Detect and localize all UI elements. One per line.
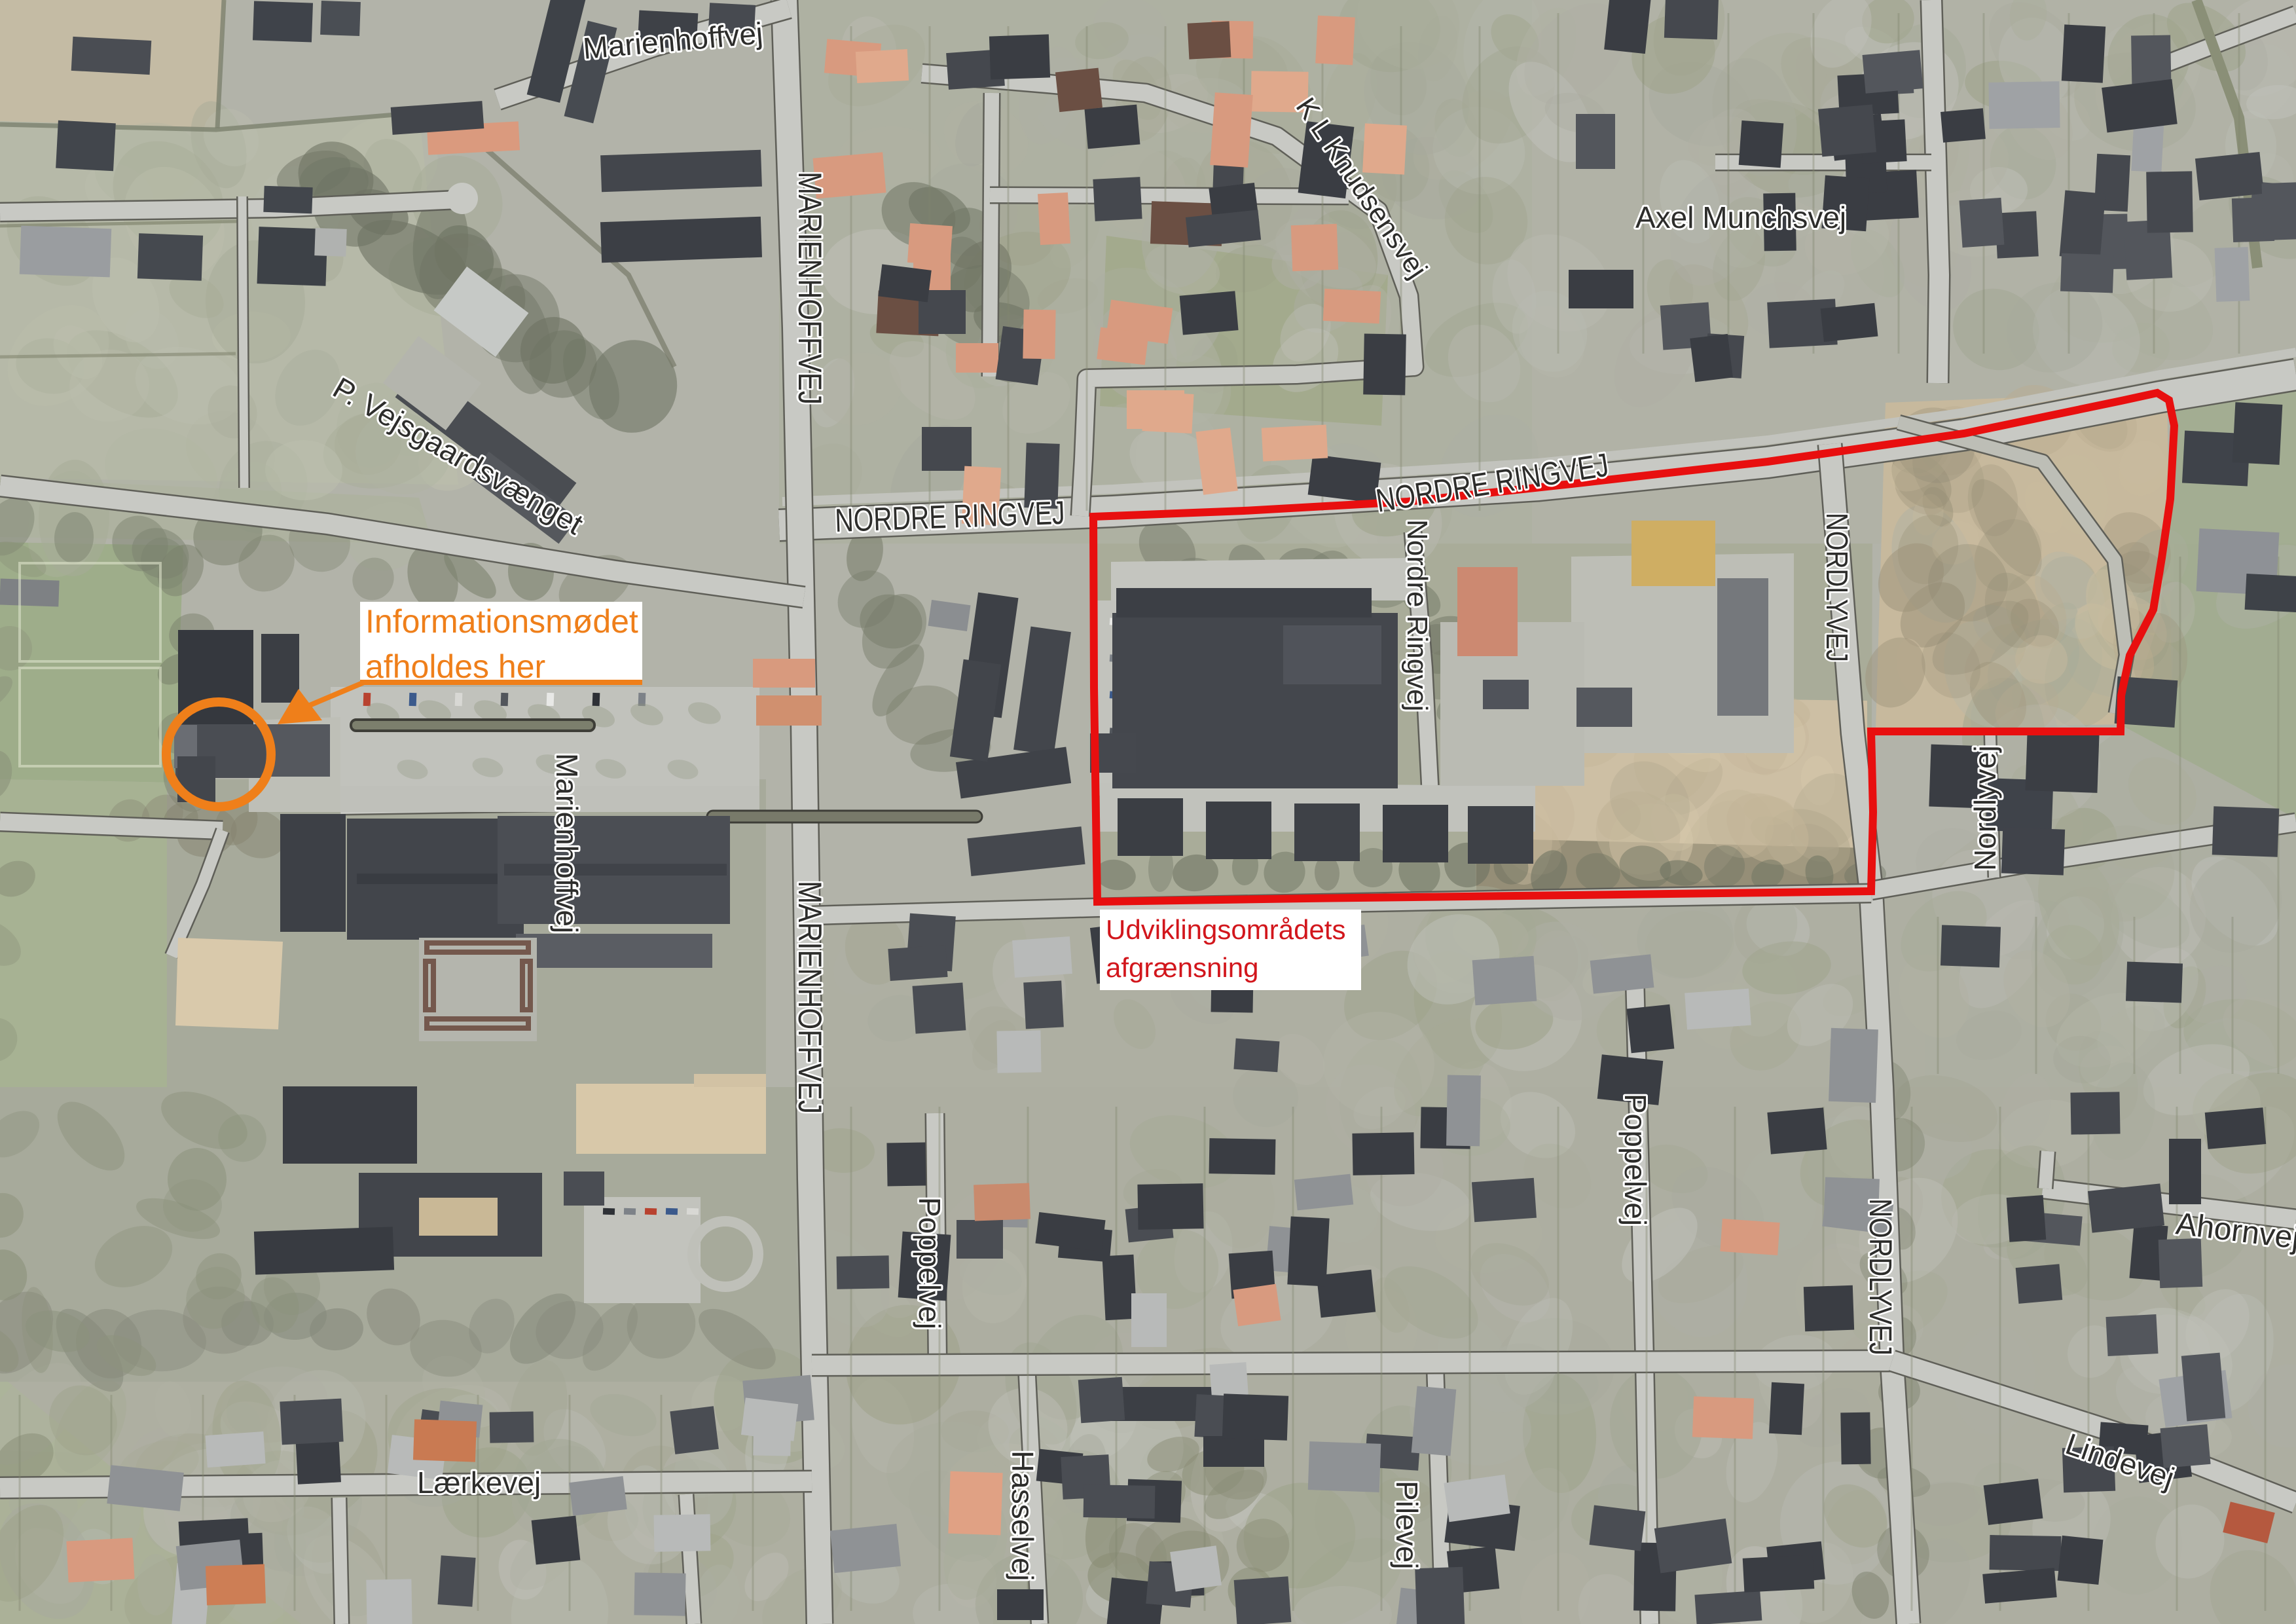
svg-text:Marienhoffvej: Marienhoffvej [550, 753, 584, 933]
svg-text:Lærkevej: Lærkevej [417, 1466, 541, 1500]
svg-text:NORDLYVEJ: NORDLYVEJ [1820, 513, 1854, 662]
svg-text:afholdes her: afholdes her [365, 648, 545, 685]
svg-text:Pilevej: Pilevej [1390, 1481, 1424, 1570]
svg-text:Nordlyvej: Nordlyvej [1968, 745, 2002, 871]
svg-text:Axel Munchsvej: Axel Munchsvej [1635, 200, 1846, 234]
svg-text:Informationsmødet: Informationsmødet [365, 603, 638, 640]
svg-text:Poppelvej: Poppelvej [1618, 1094, 1652, 1226]
svg-text:Poppelvej: Poppelvej [913, 1197, 947, 1329]
svg-text:MARIENHOFFVEJ: MARIENHOFFVEJ [792, 172, 828, 405]
svg-text:Nordre Ringvej: Nordre Ringvej [1401, 519, 1433, 711]
svg-text:Hasselvej: Hasselvej [1006, 1450, 1040, 1581]
svg-text:MARIENHOFFVEJ: MARIENHOFFVEJ [792, 881, 828, 1114]
svg-text:Udviklingsområdets: Udviklingsområdets [1106, 914, 1345, 945]
svg-text:NORDLYVEJ: NORDLYVEJ [1863, 1198, 1897, 1356]
svg-text:afgrænsning: afgrænsning [1106, 952, 1258, 983]
